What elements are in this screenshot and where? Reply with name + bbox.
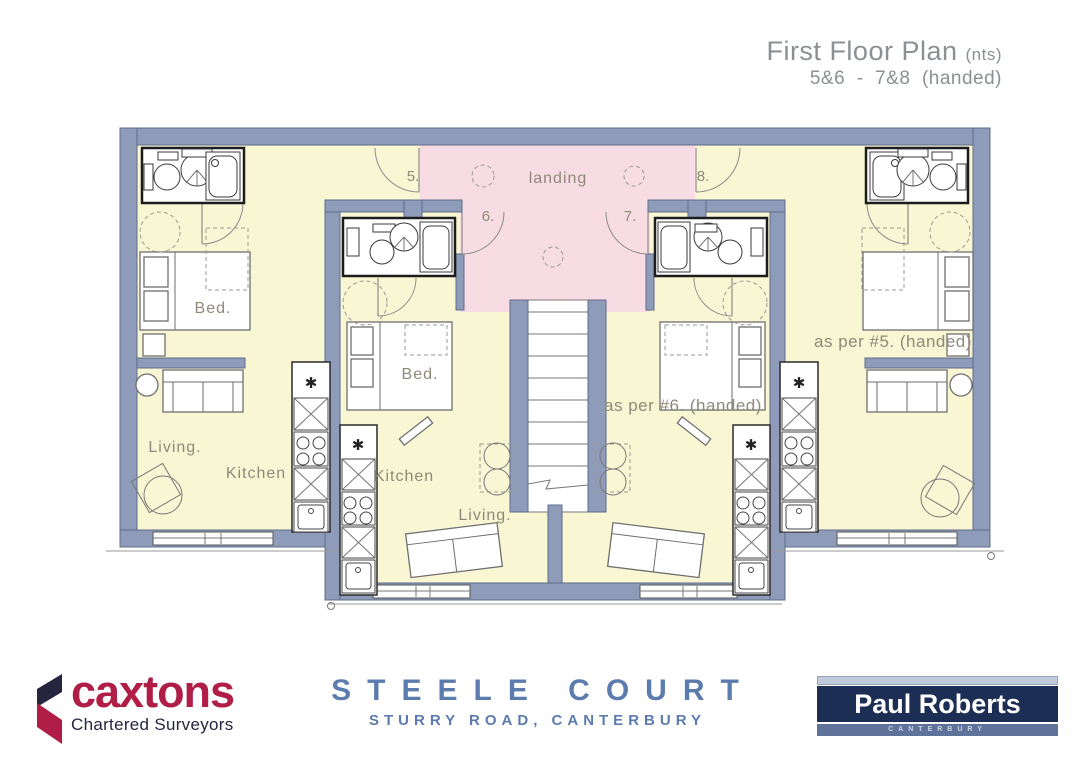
title-suffix: (nts) bbox=[966, 45, 1003, 64]
staircase bbox=[528, 300, 588, 512]
kitchen-unit5: ✱ bbox=[292, 362, 330, 532]
bathroom-unit8 bbox=[866, 148, 968, 203]
caxtons-tagline: Chartered Surveyors bbox=[71, 715, 234, 735]
kitchen-label-unit5: Kitchen bbox=[226, 465, 286, 482]
unit5-number: 5. bbox=[407, 168, 420, 185]
boiler-icon: ✱ bbox=[305, 375, 318, 392]
window-left-wing bbox=[153, 532, 273, 545]
title-line1: First Floor Plan (nts) bbox=[766, 36, 1002, 67]
floor-plan: ✱ ✱ ✱ bbox=[0, 0, 1086, 645]
unit7-number: 7. bbox=[624, 208, 637, 225]
caxtons-chevron-icon bbox=[30, 672, 66, 746]
caxtons-logo: caxtons Chartered Surveyors bbox=[30, 672, 234, 746]
kitchen-unit8: ✱ bbox=[780, 362, 818, 532]
paul-roberts-logo: Paul Roberts CANTERBURY bbox=[817, 676, 1058, 736]
bed-label-unit5: Bed. bbox=[195, 300, 232, 317]
caxtons-name: caxtons bbox=[71, 672, 234, 712]
note-unit8: as per #5. (handed) bbox=[814, 332, 972, 351]
bathroom-unit7 bbox=[655, 218, 767, 276]
window-unit7 bbox=[640, 585, 737, 598]
paul-roberts-name: Paul Roberts bbox=[817, 686, 1058, 722]
living-label-unit6: Living. bbox=[458, 507, 511, 524]
door-stop bbox=[988, 553, 995, 560]
boiler-icon: ✱ bbox=[352, 437, 365, 454]
landing-label: landing bbox=[529, 170, 588, 187]
window-right-wing bbox=[837, 532, 957, 545]
boiler-icon: ✱ bbox=[793, 375, 806, 392]
paul-roberts-top-bar bbox=[817, 676, 1058, 685]
project-address: STURRY ROAD, CANTERBURY bbox=[290, 712, 780, 729]
drawing-title: First Floor Plan (nts) 5&6 - 7&8 (handed… bbox=[766, 36, 1002, 90]
boiler-icon: ✱ bbox=[745, 437, 758, 454]
title-main: First Floor Plan bbox=[766, 36, 965, 66]
paul-roberts-city: CANTERBURY bbox=[817, 724, 1058, 736]
unit8-number: 8. bbox=[697, 168, 710, 185]
project-title: STEELE COURT STURRY ROAD, CANTERBURY bbox=[290, 674, 780, 729]
kitchen-unit7: ✱ bbox=[733, 425, 770, 595]
bathroom-unit5 bbox=[142, 148, 244, 203]
project-name: STEELE COURT bbox=[290, 674, 780, 708]
bathroom-unit6 bbox=[343, 218, 455, 276]
living-label-unit5: Living. bbox=[148, 439, 201, 456]
title-subtitle: 5&6 - 7&8 (handed) bbox=[766, 68, 1002, 90]
kitchen-label-unit6: Kitchen bbox=[374, 468, 434, 485]
kitchen-unit6: ✱ bbox=[340, 425, 377, 595]
bed-label-unit6: Bed. bbox=[402, 366, 439, 383]
unit6-number: 6. bbox=[482, 208, 495, 225]
window-unit6 bbox=[373, 585, 470, 598]
note-unit7: as per #6. (handed) bbox=[604, 396, 762, 415]
